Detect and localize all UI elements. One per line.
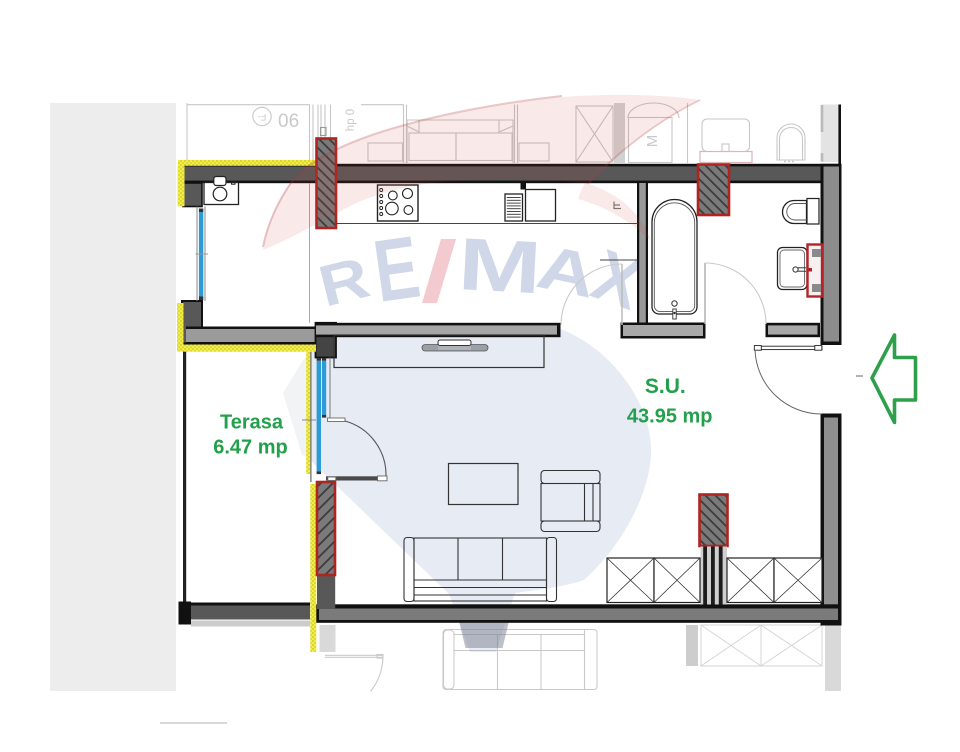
svg-text:06: 06 (278, 111, 299, 132)
svg-text:F-: F- (258, 112, 267, 122)
svg-text:S.U.: S.U. (645, 375, 686, 398)
svg-text:6.47 mp: 6.47 mp (213, 436, 287, 458)
svg-text:43.95 mp: 43.95 mp (627, 406, 713, 428)
svg-text:hp 0: hp 0 (345, 109, 357, 131)
svg-text:M: M (456, 222, 543, 310)
svg-text:Terasa: Terasa (220, 412, 284, 434)
svg-text:M: M (644, 135, 661, 148)
